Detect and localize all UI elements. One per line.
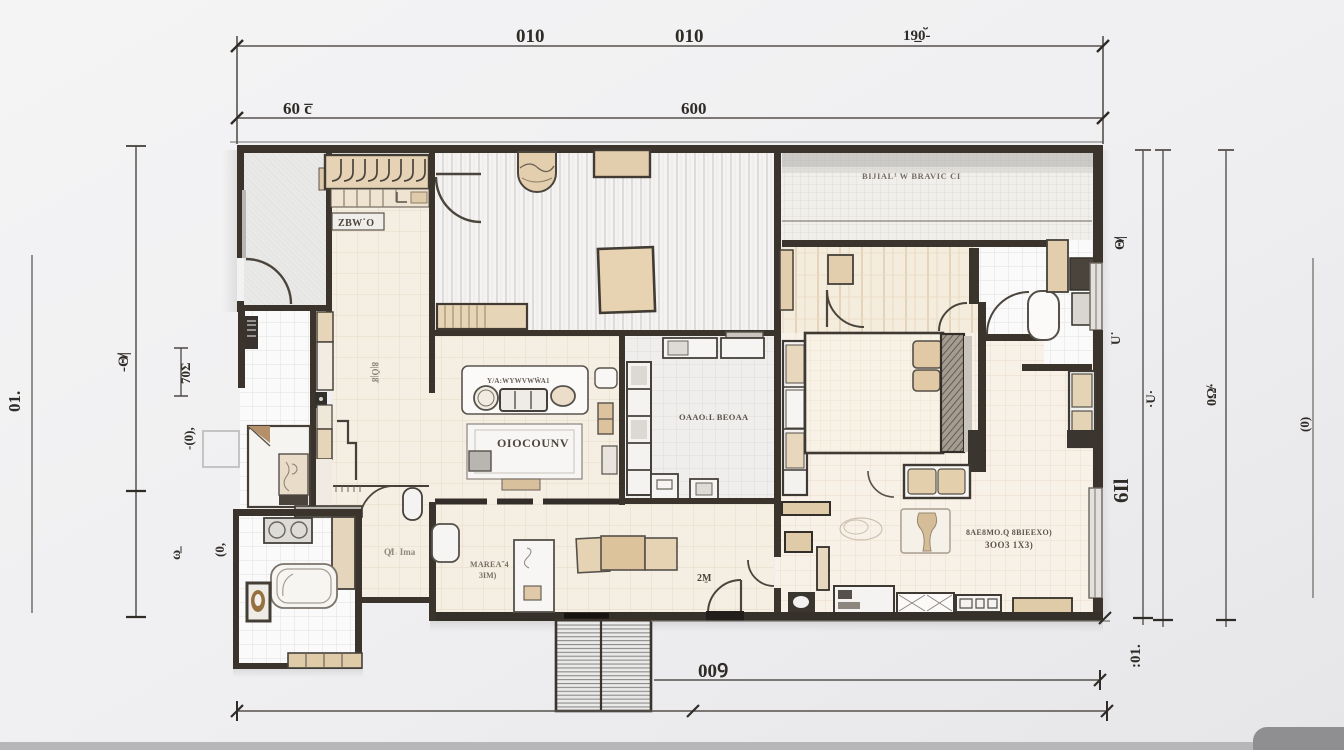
svg-text:8|Ō|8̈: 8|Ō|8̈ [370,362,380,384]
svg-text:Q̸I˒ Ima: Q̸I˒ Ima [384,547,416,557]
svg-text:01.: 01. [5,391,24,412]
svg-text:8AE8MO.Q 8BIEEXO): 8AE8MO.Q 8BIEEXO) [966,528,1052,537]
svg-text:OIOCOUNV: OIOCOUNV [497,436,569,450]
svg-text:19̲0ﬞ-: 19̲0ﬞ- [903,26,931,44]
svg-text:-(0),: -(0), [181,427,196,450]
svg-text:60 c̅: 60 c̅ [283,99,313,118]
svg-text:6Ιl: 6Ιl [1109,478,1133,503]
svg-text:010: 010 [675,26,704,47]
svg-text:OAAO˪L BEOAA: OAAO˪L BEOAA [679,412,749,422]
svg-text:ZBW˙O: ZBW˙O [338,218,374,229]
svg-text:70Σ: 70Σ [178,363,193,385]
svg-text:(0,: (0, [212,543,227,557]
svg-text:00Ꝯ: 00Ꝯ [698,661,728,682]
svg-text:Y/A:WYWVWW̌A1: Y/A:WYWVWW̌A1 [487,377,550,385]
svg-text:2M̱: 2M̱ [697,573,712,584]
svg-text::01.: :01. [1128,644,1144,668]
svg-text:Θ̸|: Θ̸| [1113,236,1128,250]
svg-text:MAREA˝4: MAREA˝4 [470,560,509,569]
svg-text:BIJIAL¹ W BRAVIC CI: BIJIAL¹ W BRAVIC CI [862,171,961,181]
svg-text:U˙: U˙ [1108,331,1123,345]
svg-text:010: 010 [516,26,545,47]
svg-text:3IM): 3IM) [479,571,497,580]
svg-text:0Ω̸·: 0Ω̸· [1205,383,1220,406]
svg-text:3OO3 1X3): 3OO3 1X3) [985,540,1033,550]
svg-text:·U·: ·U· [1143,390,1158,408]
svg-text:600: 600 [681,99,707,118]
svg-text:(0): (0) [1297,417,1312,432]
svg-text:-Θ̸|: -Θ̸| [116,352,132,372]
